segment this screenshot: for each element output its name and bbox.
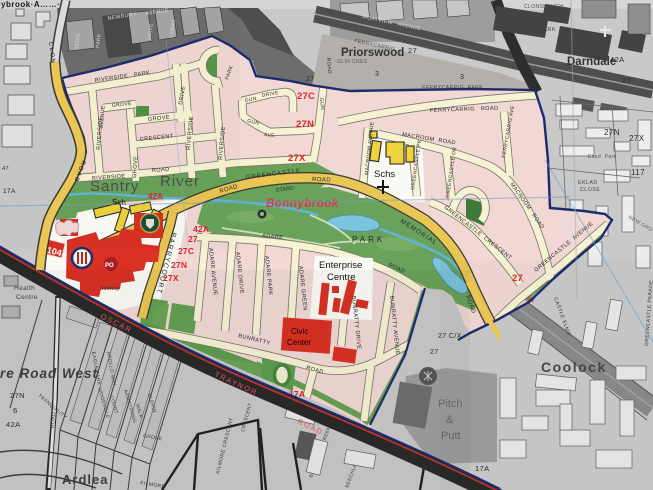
svg-text:27: 27 xyxy=(306,76,315,83)
svg-text:PARK: PARK xyxy=(352,235,385,244)
svg-text:42A: 42A xyxy=(148,192,163,201)
svg-text:PO: PO xyxy=(105,263,114,269)
svg-text:&: & xyxy=(446,414,454,426)
svg-text:27: 27 xyxy=(430,349,439,356)
svg-text:ROAD: ROAD xyxy=(312,177,331,184)
svg-text:42A: 42A xyxy=(6,420,21,429)
svg-text:AVE: AVE xyxy=(264,132,276,139)
svg-text:27X: 27X xyxy=(288,153,306,164)
svg-text:Darndale: Darndale xyxy=(567,56,616,68)
svg-text:27: 27 xyxy=(622,76,631,85)
svg-text:Ekad Park: Ekad Park xyxy=(588,154,617,160)
svg-text:Sch: Sch xyxy=(112,198,126,207)
svg-text:CLOSE: CLOSE xyxy=(580,187,600,193)
svg-text:Enterprise: Enterprise xyxy=(319,260,362,271)
svg-text:27: 27 xyxy=(408,46,417,55)
svg-text:27X: 27X xyxy=(629,134,645,143)
svg-text:GLIN CRES: GLIN CRES xyxy=(337,59,368,65)
svg-text:6: 6 xyxy=(13,406,18,415)
svg-text:3: 3 xyxy=(375,71,379,78)
svg-text:27N: 27N xyxy=(604,128,620,137)
svg-text:27C: 27C xyxy=(297,91,315,102)
svg-text:ROAD: ROAD xyxy=(50,412,57,428)
svg-text:Schs: Schs xyxy=(374,169,395,180)
svg-text:River: River xyxy=(160,173,200,190)
svg-text:27N: 27N xyxy=(296,119,314,130)
svg-text:27C: 27C xyxy=(178,246,194,256)
svg-text:47: 47 xyxy=(2,166,9,172)
svg-text:GUN PARK: GUN PARK xyxy=(524,27,556,33)
svg-text:42A: 42A xyxy=(193,224,209,234)
svg-text:27N: 27N xyxy=(171,260,187,270)
svg-text:GUN: GUN xyxy=(318,98,325,111)
svg-text:27: 27 xyxy=(188,234,198,244)
svg-text:42A: 42A xyxy=(610,55,625,64)
svg-text:re Road West: re Road West xyxy=(0,366,98,381)
svg-text:ROAD: ROAD xyxy=(152,167,170,174)
svg-text:Bonnybrook: Bonnybrook xyxy=(266,198,339,210)
svg-text:Subway: Subway xyxy=(100,286,121,292)
svg-text:3: 3 xyxy=(460,74,464,81)
svg-text:Centre: Centre xyxy=(327,272,356,283)
svg-text:Centre: Centre xyxy=(16,294,38,301)
svg-text:27N: 27N xyxy=(10,391,25,400)
svg-text:Pitch: Pitch xyxy=(438,398,462,410)
svg-text:EKLAD: EKLAD xyxy=(578,180,598,186)
svg-text:Center: Center xyxy=(287,338,311,347)
svg-text:Ardlea: Ardlea xyxy=(62,472,108,487)
svg-text:27X: 27X xyxy=(163,273,179,283)
svg-text:17A: 17A xyxy=(3,188,16,195)
svg-text:ybrook·A……··: ybrook·A……·· xyxy=(1,0,63,9)
svg-text:27: 27 xyxy=(512,273,523,284)
svg-text:Coolock: Coolock xyxy=(541,359,607,375)
svg-text:CLONSHAUGH: CLONSHAUGH xyxy=(524,4,563,10)
svg-text:Putt: Putt xyxy=(441,430,461,442)
svg-text:Civic: Civic xyxy=(291,327,308,336)
svg-text:17A: 17A xyxy=(475,464,490,473)
svg-text:117: 117 xyxy=(631,168,645,177)
